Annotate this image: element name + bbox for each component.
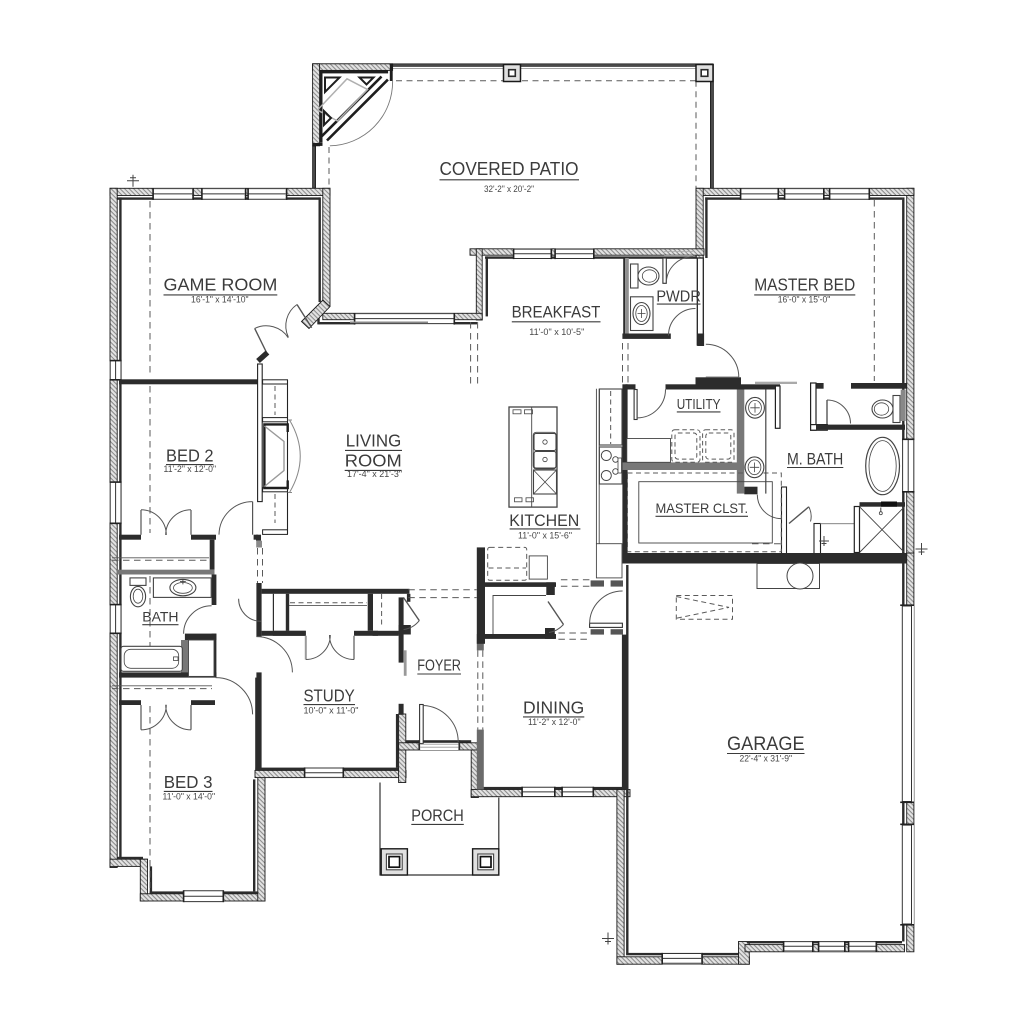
- svg-text:BED 3: BED 3: [164, 772, 213, 792]
- svg-text:10'-0" x 11'-0": 10'-0" x 11'-0": [304, 705, 359, 715]
- svg-text:BED 2: BED 2: [166, 446, 214, 466]
- svg-text:STUDY: STUDY: [303, 686, 355, 706]
- svg-text:PWDR: PWDR: [656, 288, 701, 305]
- svg-text:GARAGE: GARAGE: [727, 734, 805, 755]
- svg-text:MASTER BED: MASTER BED: [754, 275, 855, 295]
- svg-text:11'-0" x 15'-6": 11'-0" x 15'-6": [518, 531, 572, 541]
- svg-text:M. BATH: M. BATH: [787, 451, 843, 469]
- svg-text:22'-4" x 31'-9": 22'-4" x 31'-9": [740, 754, 793, 764]
- svg-text:BATH: BATH: [142, 609, 178, 624]
- svg-text:DINING: DINING: [523, 698, 584, 718]
- svg-text:MASTER CLST.: MASTER CLST.: [656, 501, 749, 516]
- svg-text:COVERED PATIO: COVERED PATIO: [440, 158, 579, 179]
- svg-text:BREAKFAST: BREAKFAST: [512, 304, 601, 322]
- svg-text:11'-2" x 12'-0": 11'-2" x 12'-0": [164, 464, 217, 474]
- svg-text:GAME ROOM: GAME ROOM: [164, 275, 278, 295]
- svg-text:FOYER: FOYER: [417, 658, 461, 675]
- svg-text:ROOM: ROOM: [345, 451, 402, 470]
- svg-text:KITCHEN: KITCHEN: [509, 512, 579, 530]
- svg-text:32'-2" x 20'-2": 32'-2" x 20'-2": [484, 184, 534, 194]
- svg-text:PORCH: PORCH: [411, 806, 464, 825]
- svg-text:LIVING: LIVING: [346, 431, 402, 450]
- svg-text:11'-0" x 10'-5": 11'-0" x 10'-5": [529, 327, 584, 337]
- svg-text:UTILITY: UTILITY: [677, 396, 721, 413]
- svg-text:11'-2" x 12'-0": 11'-2" x 12'-0": [528, 717, 581, 727]
- svg-text:11'-0" x 14'-0": 11'-0" x 14'-0": [163, 792, 216, 802]
- svg-text:17'-4" x 21'-3": 17'-4" x 21'-3": [347, 469, 402, 479]
- svg-text:16'-0" x 15'-0": 16'-0" x 15'-0": [778, 295, 831, 305]
- svg-text:16'-1" x 14'-10": 16'-1" x 14'-10": [191, 295, 249, 305]
